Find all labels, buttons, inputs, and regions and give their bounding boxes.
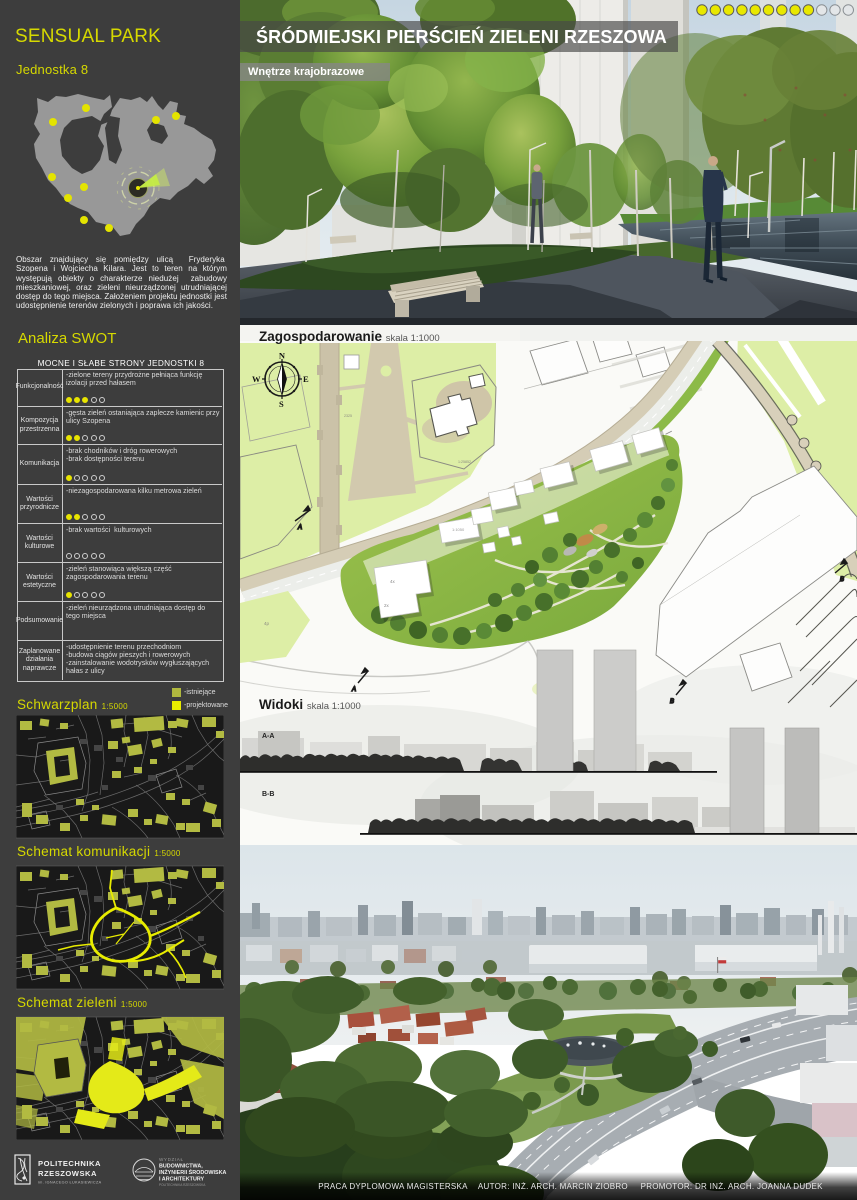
svg-text:S: S <box>279 399 284 409</box>
svg-text:WYDZIAŁ: WYDZIAŁ <box>159 1157 184 1162</box>
svg-text:2325: 2325 <box>344 414 352 418</box>
svg-text:B: B <box>840 577 844 583</box>
svg-text:A: A <box>297 525 302 531</box>
svg-text:1:25852: 1:25852 <box>458 460 471 464</box>
svg-text:B: B <box>670 699 674 705</box>
svg-text:N: N <box>279 351 286 361</box>
svg-text:A: A <box>351 687 356 693</box>
svg-text:E: E <box>303 374 309 384</box>
svg-text:im. IGNACEGO ŁUKASIEWICZA: im. IGNACEGO ŁUKASIEWICZA <box>38 1181 102 1185</box>
svg-text:I ARCHITEKTURY: I ARCHITEKTURY <box>159 1177 205 1183</box>
svg-text:INŻYNIERII ŚRODOWISKA: INŻYNIERII ŚRODOWISKA <box>159 1169 226 1176</box>
svg-text:BUDOWNICTWA,: BUDOWNICTWA, <box>159 1164 203 1170</box>
svg-text:RZESZOWSKA: RZESZOWSKA <box>38 1169 97 1178</box>
svg-text:4p: 4p <box>264 621 270 626</box>
svg-text:2x: 2x <box>384 603 390 608</box>
svg-text:POLITECHNIKA RZESZOWSKA: POLITECHNIKA RZESZOWSKA <box>159 1183 206 1187</box>
svg-text:W: W <box>252 374 261 384</box>
svg-text:POLITECHNIKA: POLITECHNIKA <box>38 1159 101 1168</box>
svg-text:1:1050: 1:1050 <box>452 527 465 532</box>
svg-text:4x: 4x <box>390 579 396 584</box>
